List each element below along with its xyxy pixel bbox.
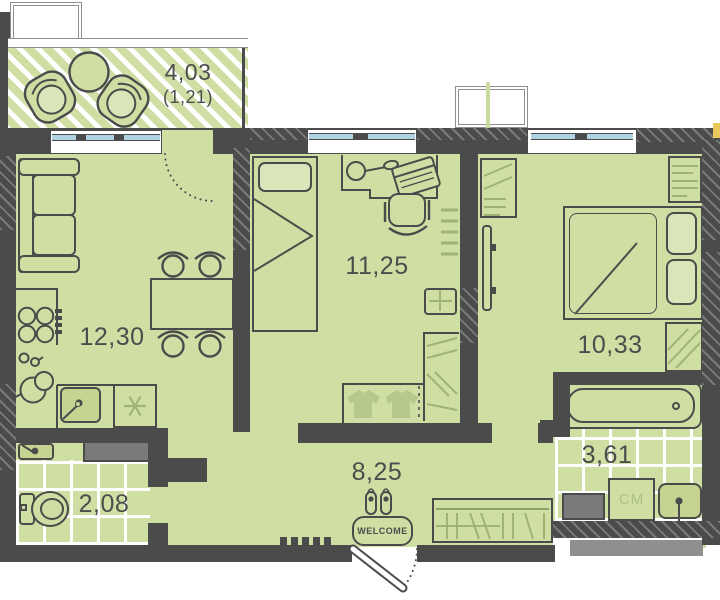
hallway-area-label: 8,25 xyxy=(327,460,427,485)
wc-sink-faucet xyxy=(22,445,37,453)
wc-area-label: 2,08 xyxy=(54,492,154,517)
stove-icon xyxy=(19,308,62,342)
bed-fold-line xyxy=(575,243,637,314)
balcony-area-label: 4,03 xyxy=(138,61,238,84)
balcony-reduced-area-label: (1,21) xyxy=(138,88,238,106)
office-chair-icon xyxy=(385,194,429,235)
kitchen-counter xyxy=(16,289,113,428)
round-table-icon xyxy=(70,53,109,92)
balcony-door-arc xyxy=(165,154,212,201)
dining-chair-icon xyxy=(158,253,225,357)
floorplan: 4,03 (1,21) 12,30 11,25 10,33 СМ 3,61 2,… xyxy=(0,0,720,600)
snowflake-icon xyxy=(124,397,146,416)
shelf-icon xyxy=(441,210,458,254)
laptop-icon xyxy=(392,157,441,198)
bathroom-sink-faucet xyxy=(676,498,681,521)
tshirt-icon xyxy=(348,390,418,418)
living-area-label: 12,30 xyxy=(62,325,162,350)
shoes-icon xyxy=(366,489,391,514)
entrance-door xyxy=(353,549,417,588)
bedroom-right-area-label: 10,33 xyxy=(560,333,660,358)
cookware-icon xyxy=(12,354,53,403)
tv-unit-icon xyxy=(483,226,496,310)
hanger-lines xyxy=(427,338,457,410)
bed-fold-line xyxy=(254,199,312,271)
bedside-table-cross xyxy=(429,290,452,311)
radiator-icon xyxy=(280,537,331,545)
bathroom-area-label: 3,61 xyxy=(557,443,657,468)
bathtub-drain xyxy=(673,403,679,409)
hallway-wardrobe-hangers xyxy=(436,509,549,539)
sink-drain-dot xyxy=(75,401,81,407)
desk-lamp-icon xyxy=(347,160,399,180)
bedroom-middle-area-label: 11,25 xyxy=(327,254,427,279)
